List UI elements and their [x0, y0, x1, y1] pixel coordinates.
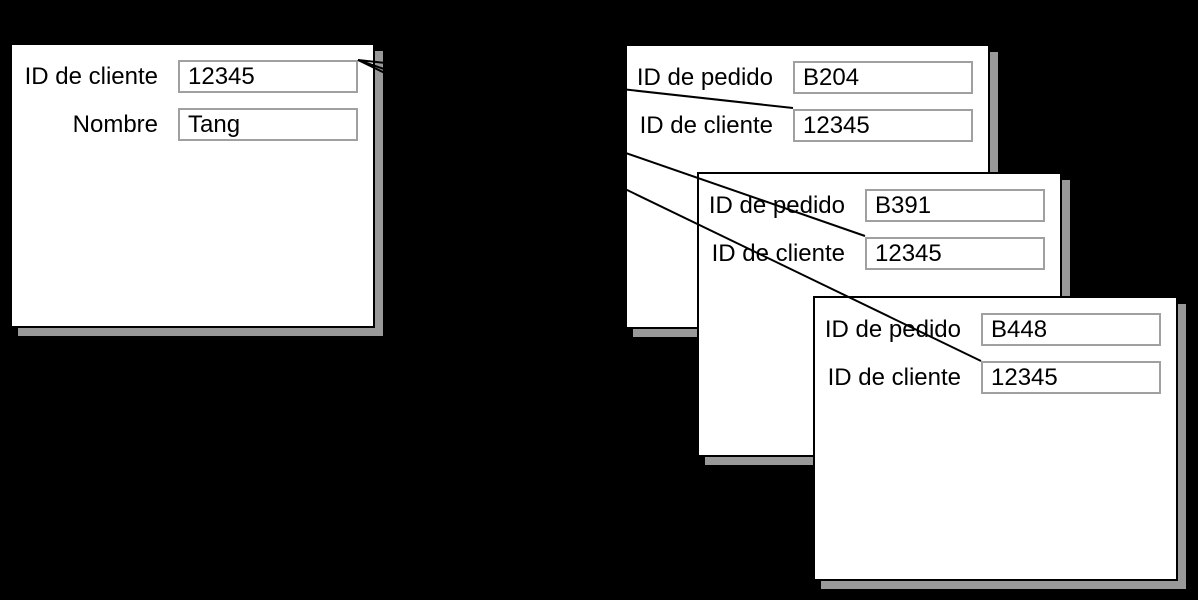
diagram-canvas: ID de cliente 12345 Nombre Tang ID de pe… [0, 0, 1198, 600]
order-customer-id-label: ID de cliente [627, 112, 773, 140]
order-customer-id-label: ID de cliente [815, 364, 961, 392]
order-id-label: ID de pedido [815, 316, 961, 344]
order-id-label: ID de pedido [627, 64, 773, 92]
order-id-row: ID de pedido B391 [699, 189, 1060, 222]
order-customer-id-field[interactable]: 12345 [865, 237, 1045, 270]
order-record-card-b448: ID de pedido B448 ID de cliente 12345 [813, 296, 1178, 581]
customer-name-label: Nombre [12, 111, 158, 139]
customer-id-row: ID de cliente 12345 [12, 60, 373, 93]
order-customer-id-field[interactable]: 12345 [981, 361, 1161, 394]
order-id-field[interactable]: B448 [981, 313, 1161, 346]
order-customer-id-field[interactable]: 12345 [793, 109, 973, 142]
order-customer-id-row: ID de cliente 12345 [699, 237, 1060, 270]
order-customer-id-row: ID de cliente 12345 [627, 109, 988, 142]
order-id-field[interactable]: B204 [793, 61, 973, 94]
order-customer-id-label: ID de cliente [699, 240, 845, 268]
customer-name-field[interactable]: Tang [178, 108, 358, 141]
customer-id-label: ID de cliente [12, 63, 158, 91]
customer-name-row: Nombre Tang [12, 108, 373, 141]
order-id-field[interactable]: B391 [865, 189, 1045, 222]
customer-id-field[interactable]: 12345 [178, 60, 358, 93]
customer-record-card: ID de cliente 12345 Nombre Tang [10, 43, 375, 328]
order-id-label: ID de pedido [699, 192, 845, 220]
order-id-row: ID de pedido B448 [815, 313, 1176, 346]
order-id-row: ID de pedido B204 [627, 61, 988, 94]
order-customer-id-row: ID de cliente 12345 [815, 361, 1176, 394]
